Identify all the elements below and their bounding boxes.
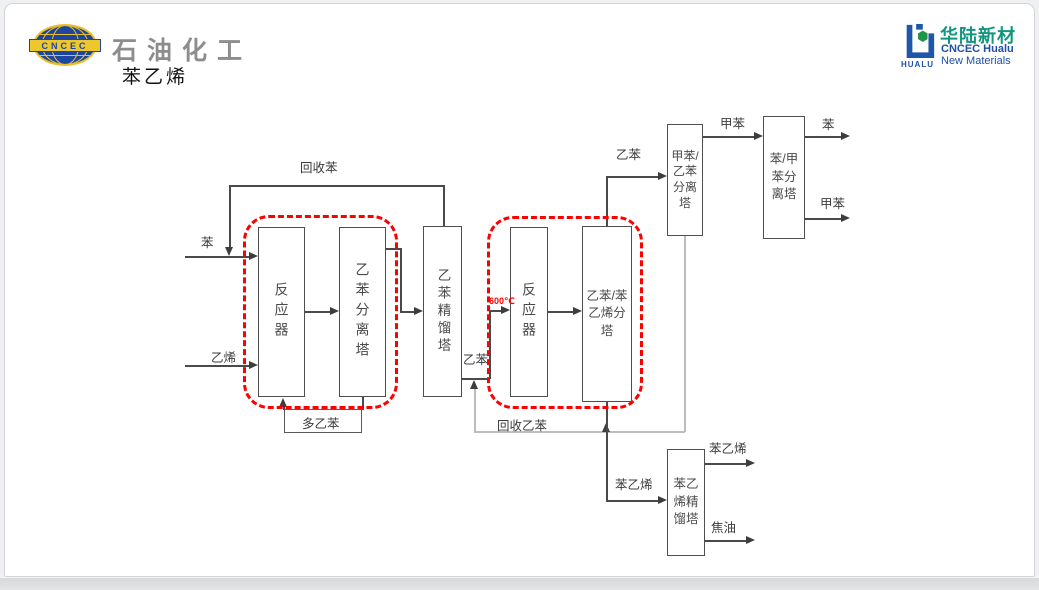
box-eb-distillation-column: 乙苯精馏塔: [423, 226, 462, 397]
arrowhead: [746, 536, 755, 544]
box-eb-separation-column: 乙苯分离塔: [339, 227, 386, 397]
box-reactor-1: 反应器: [258, 227, 305, 397]
label-styrene-to-column: 苯乙烯: [615, 474, 653, 493]
label-recycle-ethylbenzene: 回收乙苯: [497, 415, 547, 434]
line-polyeb-down: [362, 397, 364, 410]
line-ebsep-riser: [400, 248, 402, 312]
arrowhead: [841, 132, 850, 140]
line-styrene-into-column: [606, 500, 659, 502]
hualu-name-en-line2: New Materials: [941, 55, 1011, 67]
label-reactor2-temperature: 600℃: [489, 296, 515, 307]
box-benzene-toluene-separation-column-label: 苯/甲 苯分 离塔: [770, 151, 798, 204]
arrowhead: [754, 132, 763, 140]
box-reactor-2-label: 反应器: [519, 282, 539, 342]
label-ethylene-feed: 乙烯: [211, 347, 236, 366]
slide-edge-shadow: [0, 578, 1039, 590]
label-toluene-intermediate: 甲苯: [720, 113, 745, 132]
screenshot-canvas: CNCEC 石油化工 苯乙烯 HUALU 华陆新材 CNCEC Hualu Ne…: [0, 0, 1039, 590]
arrowhead: [225, 247, 233, 256]
label-benzene-product: 苯: [822, 114, 835, 133]
cncec-logo-icon: CNCEC: [33, 24, 97, 66]
line-tar-product: [705, 540, 747, 542]
hualu-wordmark: HUALU: [901, 60, 934, 69]
arrowhead: [841, 214, 850, 222]
line-into-ebdist: [400, 311, 415, 313]
hualu-name-en-line1: CNCEC Hualu: [941, 43, 1014, 55]
line-recycle-benzene-left: [229, 185, 231, 247]
label-toluene-product: 甲苯: [820, 193, 845, 212]
box-eb-distillation-column-label: 乙苯精馏塔: [433, 268, 453, 356]
line-benzene-feed: [185, 256, 250, 258]
box-eb-sm-splitter-column: 乙苯/苯 乙烯分 塔: [582, 226, 632, 402]
globe-parallel: [35, 55, 95, 56]
label-recycle-benzene: 回收苯: [300, 157, 338, 176]
line-styrene-product: [705, 463, 747, 465]
box-sm-distillation-column-label: 苯乙 烯精 馏塔: [673, 476, 698, 529]
line-reactor2-to-splitter: [548, 311, 574, 313]
line-eb-overhead: [606, 176, 659, 178]
hualu-logo-icon: [903, 23, 935, 59]
line-recycle-benzene-top: [229, 185, 444, 187]
label-tar-product: 焦油: [711, 517, 736, 536]
line-ebsep-exit: [386, 248, 401, 250]
arrowhead: [501, 306, 510, 314]
arrowhead: [279, 398, 287, 407]
line-recycle-benzene-right: [443, 185, 445, 227]
label-poly-ethylbenzene: 多乙苯: [302, 413, 340, 432]
slide: CNCEC 石油化工 苯乙烯 HUALU 华陆新材 CNCEC Hualu Ne…: [4, 3, 1035, 577]
label-eb-to-reactor2: 乙苯: [463, 349, 488, 368]
arrowhead: [249, 252, 258, 260]
globe-parallel: [35, 34, 95, 35]
arrowhead: [249, 361, 258, 369]
page-title: 苯乙烯: [122, 62, 188, 89]
label-styrene-product: 苯乙烯: [709, 438, 747, 457]
box-reactor-2: 反应器: [510, 227, 548, 397]
arrowhead: [746, 459, 755, 467]
box-eb-separation-column-label: 乙苯分离塔: [353, 262, 373, 362]
arrowhead: [658, 496, 667, 504]
box-eb-sm-splitter-column-label: 乙苯/苯 乙烯分 塔: [587, 288, 628, 341]
line-toluene-intermediate: [703, 136, 755, 138]
arrowhead: [414, 307, 423, 315]
arrowhead: [573, 307, 582, 315]
arrowhead: [658, 172, 667, 180]
label-eb-overhead: 乙苯: [616, 144, 641, 163]
box-sm-distillation-column: 苯乙 烯精 馏塔: [667, 449, 705, 556]
line-recycle-eb-down: [684, 236, 686, 432]
box-toluene-eb-separation-column-label: 甲苯/ 乙苯 分离 塔: [671, 149, 698, 211]
line-recycle-eb-up: [474, 389, 476, 432]
label-benzene-feed: 苯: [201, 232, 214, 251]
line-toluene-product: [805, 218, 842, 220]
line-eb-riser: [489, 311, 491, 379]
line-styrene-down: [606, 402, 608, 501]
box-toluene-eb-separation-column: 甲苯/ 乙苯 分离 塔: [667, 124, 703, 236]
box-reactor-1-label: 反应器: [272, 282, 292, 342]
line-reactor1-to-ebsep: [305, 311, 331, 313]
line-benzene-product: [805, 136, 842, 138]
arrowhead: [330, 307, 339, 315]
arrowhead: [470, 380, 478, 389]
box-benzene-toluene-separation-column: 苯/甲 苯分 离塔: [763, 116, 805, 239]
line-eb-overhead-riser: [606, 177, 608, 227]
hualu-logo: HUALU 华陆新材 CNCEC Hualu New Materials: [901, 21, 1021, 71]
cncec-logo-text: CNCEC: [29, 39, 101, 52]
